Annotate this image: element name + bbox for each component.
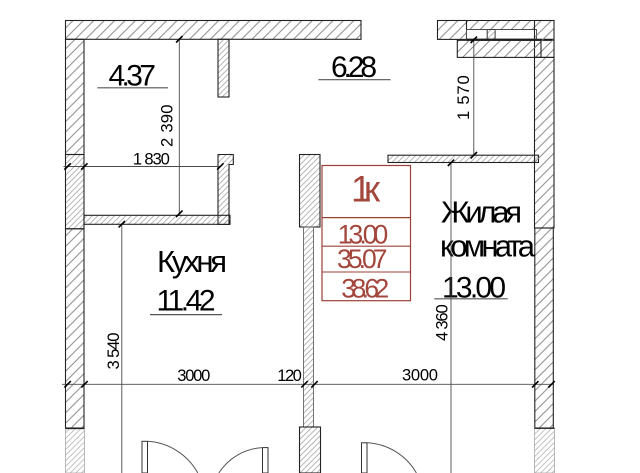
svg-text:6.28: 6.28 [331, 51, 377, 84]
svg-text:4 360: 4 360 [433, 304, 452, 341]
svg-text:комната: комната [440, 228, 536, 263]
svg-text:35.07: 35.07 [337, 244, 388, 274]
svg-text:1 830: 1 830 [133, 150, 170, 169]
svg-text:2 390: 2 390 [158, 105, 177, 148]
svg-text:Кухня: Кухня [157, 244, 227, 279]
svg-text:11.42: 11.42 [157, 284, 216, 317]
svg-text:Жилая: Жилая [441, 195, 522, 230]
svg-text:1 570: 1 570 [454, 75, 473, 120]
svg-text:3000: 3000 [177, 366, 210, 385]
svg-text:1к: 1к [351, 169, 381, 210]
svg-text:3000: 3000 [402, 366, 438, 385]
svg-text:3 540: 3 540 [104, 333, 123, 370]
svg-text:120: 120 [277, 366, 302, 385]
svg-text:38.62: 38.62 [341, 273, 389, 303]
